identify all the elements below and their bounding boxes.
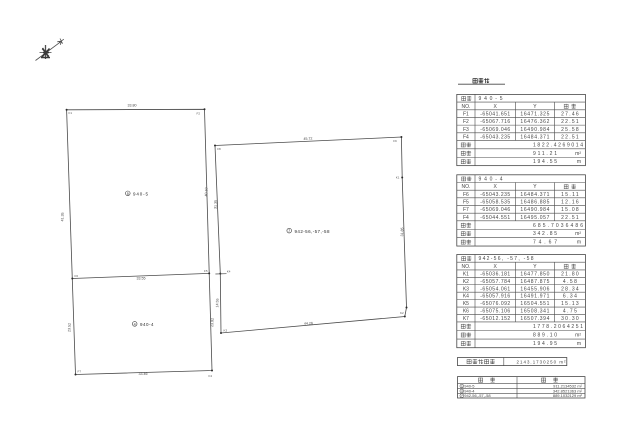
svg-text:21.80: 21.80 [561, 271, 579, 277]
svg-text:F8: F8 [217, 147, 221, 151]
svg-text:F1: F1 [69, 111, 73, 115]
svg-text:F9: F9 [393, 139, 397, 143]
svg-text:F4: F4 [463, 134, 469, 140]
svg-text:F1: F1 [463, 111, 469, 117]
svg-text:889.1032129 m²: 889.1032129 m² [553, 393, 583, 398]
svg-text:K1: K1 [396, 176, 400, 180]
svg-text:30.30: 30.30 [561, 316, 579, 322]
svg-text:31.85: 31.85 [400, 227, 404, 236]
svg-text:K6: K6 [463, 309, 469, 315]
svg-text:12.16: 12.16 [561, 199, 579, 205]
svg-text:-65041.651: -65041.651 [480, 111, 510, 117]
svg-text:23.52: 23.52 [67, 323, 71, 332]
svg-text:942-56,-57,-58: 942-56,-57,-58 [464, 393, 491, 398]
svg-text:F2: F2 [197, 111, 201, 115]
svg-text:F4: F4 [209, 374, 213, 378]
svg-text:7: 7 [288, 229, 290, 233]
svg-text:16507.394: 16507.394 [520, 316, 549, 322]
svg-text:K4: K4 [227, 270, 231, 274]
svg-text:16471.325: 16471.325 [520, 111, 549, 117]
svg-text:14.55: 14.55 [215, 298, 219, 307]
svg-text:15.11: 15.11 [561, 192, 579, 198]
svg-text:NO.: NO. [461, 264, 470, 270]
svg-text:940-5: 940-5 [133, 192, 148, 197]
svg-text:74.67: 74.67 [533, 240, 557, 246]
svg-text:33.80: 33.80 [128, 104, 137, 108]
svg-text:16477.850: 16477.850 [520, 271, 549, 277]
svg-text:Y: Y [533, 264, 537, 270]
svg-text:K3: K3 [463, 286, 469, 292]
svg-text:45.72: 45.72 [303, 137, 312, 141]
svg-text:33.46: 33.46 [139, 372, 148, 376]
svg-text:6.34: 6.34 [563, 294, 577, 300]
svg-text:27.46: 27.46 [561, 111, 579, 117]
svg-text:NO.: NO. [461, 184, 470, 190]
svg-text:22.51: 22.51 [561, 119, 579, 125]
svg-text:X: X [494, 104, 498, 110]
svg-text:F6: F6 [75, 274, 79, 278]
svg-text:16491.971: 16491.971 [520, 294, 549, 300]
svg-text:194.55: 194.55 [533, 159, 557, 165]
svg-text:K2: K2 [400, 311, 404, 315]
svg-text:-65067.716: -65067.716 [480, 119, 510, 125]
svg-text:K2: K2 [463, 279, 469, 285]
svg-text:-65036.181: -65036.181 [480, 271, 510, 277]
svg-text:940-4: 940-4 [140, 322, 154, 327]
svg-text:342.85: 342.85 [533, 231, 557, 237]
svg-text:Y: Y [533, 184, 537, 190]
svg-text:44.26: 44.26 [304, 321, 313, 325]
svg-text:2143.1730250 m²: 2143.1730250 m² [517, 360, 567, 365]
svg-text:889.10: 889.10 [533, 333, 557, 339]
svg-text:m²: m² [575, 231, 581, 237]
svg-text:-65044.551: -65044.551 [480, 215, 510, 221]
svg-text:X: X [494, 264, 498, 270]
svg-text:940-5: 940-5 [479, 96, 503, 102]
svg-text:685.7036486: 685.7036486 [533, 223, 583, 229]
svg-text:1822.4269014: 1822.4269014 [533, 142, 583, 148]
svg-text:-65075.106: -65075.106 [480, 309, 510, 315]
svg-text:194.95: 194.95 [533, 341, 557, 347]
svg-text:m: m [577, 341, 581, 347]
svg-text:F5: F5 [463, 199, 469, 205]
svg-text:16455.906: 16455.906 [520, 286, 549, 292]
svg-text:F2: F2 [463, 119, 469, 125]
svg-text:-65054.061: -65054.061 [480, 286, 510, 292]
svg-text:K5: K5 [463, 301, 469, 307]
svg-text:16486.885: 16486.885 [520, 199, 549, 205]
svg-text:16490.984: 16490.984 [520, 207, 549, 213]
svg-text:16484.371: 16484.371 [520, 192, 549, 198]
svg-text:911.21: 911.21 [533, 151, 557, 157]
svg-text:F4: F4 [463, 215, 469, 221]
svg-text:940-4: 940-4 [479, 176, 503, 182]
svg-text:K7: K7 [463, 316, 469, 322]
svg-text:4.58: 4.58 [563, 279, 577, 285]
svg-text:F3: F3 [463, 127, 469, 133]
svg-text:-65069.046: -65069.046 [480, 127, 510, 133]
svg-text:K4: K4 [463, 294, 469, 300]
svg-text:15.08: 15.08 [561, 207, 579, 213]
svg-text:25.58: 25.58 [561, 127, 579, 133]
svg-text:5: 5 [127, 192, 129, 196]
svg-text:16495.057: 16495.057 [520, 215, 549, 221]
svg-text:16508.341: 16508.341 [520, 309, 549, 315]
svg-text:16484.371: 16484.371 [520, 134, 549, 140]
svg-text:-65057.784: -65057.784 [480, 279, 510, 285]
svg-text:16504.551: 16504.551 [520, 301, 549, 307]
svg-text:X: X [494, 184, 498, 190]
svg-text:15.13: 15.13 [561, 301, 579, 307]
svg-text:22.51: 22.51 [561, 134, 579, 140]
svg-text:F7: F7 [78, 369, 82, 373]
svg-text:16487.875: 16487.875 [520, 279, 549, 285]
svg-text:m²: m² [575, 333, 581, 339]
svg-text:28.34: 28.34 [561, 286, 579, 292]
svg-text:-65043.235: -65043.235 [480, 134, 510, 140]
svg-text:16490.984: 16490.984 [520, 127, 549, 133]
svg-text:22.51: 22.51 [561, 215, 579, 221]
svg-text:m: m [577, 159, 581, 165]
svg-text:31.35: 31.35 [214, 200, 218, 209]
svg-text:NO.: NO. [461, 104, 470, 110]
svg-text:F5: F5 [204, 269, 208, 273]
svg-text:942-56, -57, -58: 942-56, -57, -58 [479, 256, 534, 262]
svg-text:m²: m² [575, 151, 581, 157]
svg-text:-65012.152: -65012.152 [480, 316, 510, 322]
svg-text:4.75: 4.75 [563, 309, 577, 315]
svg-text:4: 4 [134, 322, 136, 326]
svg-text:F6: F6 [463, 192, 469, 198]
svg-text:m: m [577, 240, 581, 246]
svg-text:40.10: 40.10 [204, 187, 208, 196]
svg-text:41.35: 41.35 [60, 212, 64, 221]
svg-text:-65076.092: -65076.092 [480, 301, 510, 307]
svg-text:23.82: 23.82 [210, 318, 214, 327]
svg-text:K3: K3 [224, 329, 228, 333]
svg-text:16476.362: 16476.362 [520, 119, 549, 125]
svg-text:-65043.235: -65043.235 [480, 192, 510, 198]
svg-text:K1: K1 [463, 271, 469, 277]
svg-text:-65069.046: -65069.046 [480, 207, 510, 213]
svg-text:33.55: 33.55 [137, 277, 146, 281]
svg-text:1778.2064251: 1778.2064251 [533, 324, 583, 330]
svg-text:-65057.916: -65057.916 [480, 294, 510, 300]
svg-text:F7: F7 [463, 207, 469, 213]
svg-text:-65058.535: -65058.535 [480, 199, 510, 205]
svg-text:942-56,-57,-58: 942-56,-57,-58 [295, 229, 330, 234]
svg-text:Y: Y [533, 104, 537, 110]
